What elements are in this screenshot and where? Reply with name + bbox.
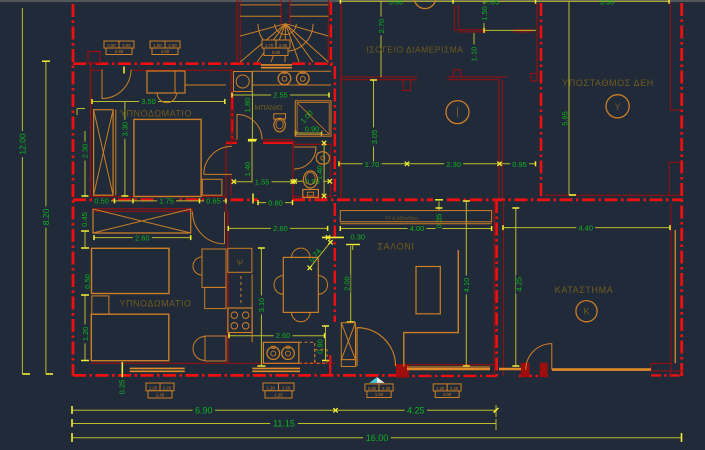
svg-text:1.20: 1.20: [267, 386, 276, 391]
svg-text:1.00: 1.00: [375, 392, 384, 397]
svg-text:TV & βιβλιοθήκη: TV & βιβλιοθήκη: [385, 214, 418, 220]
svg-text:1.00: 1.00: [153, 43, 162, 48]
svg-text:3.30: 3.30: [121, 122, 130, 137]
svg-text:1.55: 1.55: [255, 177, 270, 186]
svg-text:4.40: 4.40: [578, 223, 593, 232]
svg-text:1.20: 1.20: [81, 326, 90, 341]
svg-text:2.30: 2.30: [81, 144, 90, 159]
svg-text:6.90: 6.90: [195, 405, 213, 415]
svg-text:1.45: 1.45: [156, 393, 165, 398]
svg-text:Υ: Υ: [615, 102, 621, 112]
svg-text:0.80: 0.80: [272, 50, 281, 55]
svg-text:0.50: 0.50: [94, 197, 109, 206]
svg-text:3.50: 3.50: [141, 97, 156, 106]
svg-text:Κ: Κ: [583, 307, 589, 317]
svg-text:0.35: 0.35: [434, 214, 443, 229]
svg-text:2.60: 2.60: [276, 331, 291, 340]
svg-text:2.70: 2.70: [377, 19, 386, 34]
svg-text:ΣΑΛΟΝΙ: ΣΑΛΟΝΙ: [378, 242, 415, 252]
svg-text:1.10: 1.10: [470, 47, 479, 62]
svg-text:0.90: 0.90: [107, 43, 116, 48]
svg-text:2.20: 2.20: [282, 386, 291, 391]
svg-text:11.15: 11.15: [273, 419, 295, 429]
svg-text:2.00: 2.00: [342, 276, 351, 291]
svg-text:4.00: 4.00: [410, 224, 425, 233]
svg-text:ΥΠΟΣΤΑΘΜΟΣ ΔΕΗ: ΥΠΟΣΤΑΘΜΟΣ ΔΕΗ: [562, 78, 654, 88]
svg-text:0.25: 0.25: [117, 380, 126, 395]
svg-text:0.50: 0.50: [83, 274, 92, 289]
svg-text:0.80: 0.80: [268, 198, 283, 207]
svg-text:2.00: 2.00: [168, 43, 177, 48]
svg-text:2.60: 2.60: [135, 233, 150, 242]
svg-text:1.25: 1.25: [274, 393, 283, 398]
svg-text:2.20: 2.20: [450, 386, 459, 391]
svg-text:2.20: 2.20: [163, 386, 172, 391]
svg-text:ΜΠΑΝΙΟ: ΜΠΑΝΙΟ: [255, 105, 284, 112]
svg-text:8.20: 8.20: [41, 208, 51, 225]
svg-text:2.00: 2.00: [443, 392, 452, 397]
svg-text:12.00: 12.00: [18, 133, 28, 155]
svg-text:4.10: 4.10: [462, 278, 471, 293]
svg-text:0.95: 0.95: [512, 160, 527, 169]
svg-text:1.80: 1.80: [243, 98, 252, 113]
svg-text:4.25: 4.25: [407, 405, 425, 415]
svg-text:4.25: 4.25: [514, 277, 523, 292]
svg-text:2.60: 2.60: [273, 224, 288, 233]
svg-text:1.20: 1.20: [436, 386, 445, 391]
svg-text:16.00: 16.00: [366, 433, 389, 443]
svg-text:Ψ: Ψ: [236, 259, 243, 268]
svg-text:1.75: 1.75: [159, 197, 174, 206]
svg-text:2.00: 2.00: [122, 43, 131, 48]
svg-text:0.30: 0.30: [350, 233, 365, 242]
svg-text:1.70: 1.70: [365, 160, 380, 169]
svg-text:0.90: 0.90: [368, 386, 377, 391]
svg-text:1.00: 1.00: [161, 49, 170, 54]
svg-text:1.40: 1.40: [243, 162, 252, 177]
svg-text:3.10: 3.10: [257, 298, 266, 313]
svg-text:3.05: 3.05: [370, 130, 379, 145]
svg-text:2.55: 2.55: [273, 91, 288, 100]
svg-text:2.30: 2.30: [446, 160, 461, 169]
svg-text:0.90: 0.90: [316, 339, 325, 354]
svg-text:3.30: 3.30: [600, 0, 615, 7]
svg-text:0.65: 0.65: [206, 197, 221, 206]
svg-text:ΙΣΟΓΕΙΟ ΔΙΑΜΕΡΙΣΜΑ: ΙΣΟΓΕΙΟ ΔΙΑΜΕΡΙΣΜΑ: [367, 45, 464, 55]
svg-text:3.00: 3.00: [389, 0, 404, 7]
svg-text:1.50: 1.50: [480, 6, 489, 21]
svg-text:0.45: 0.45: [80, 212, 89, 227]
svg-text:5.85: 5.85: [560, 111, 569, 126]
svg-text:0.90: 0.90: [305, 125, 320, 134]
svg-text:2.20: 2.20: [382, 386, 391, 391]
svg-text:ΥΠΝΟΔΩΜΑΤΙΟ: ΥΠΝΟΔΩΜΑΤΙΟ: [120, 108, 192, 118]
svg-text:ΥΠΝΟΔΩΜΑΤΙΟ: ΥΠΝΟΔΩΜΑΤΙΟ: [120, 299, 192, 309]
svg-text:0.80: 0.80: [115, 49, 124, 54]
svg-text:2.00: 2.00: [279, 43, 288, 48]
svg-text:1.70: 1.70: [265, 43, 274, 48]
svg-text:ΚΑΤΑΣΤΗΜΑ: ΚΑΤΑΣΤΗΜΑ: [555, 285, 614, 295]
svg-text:1.20: 1.20: [149, 386, 158, 391]
